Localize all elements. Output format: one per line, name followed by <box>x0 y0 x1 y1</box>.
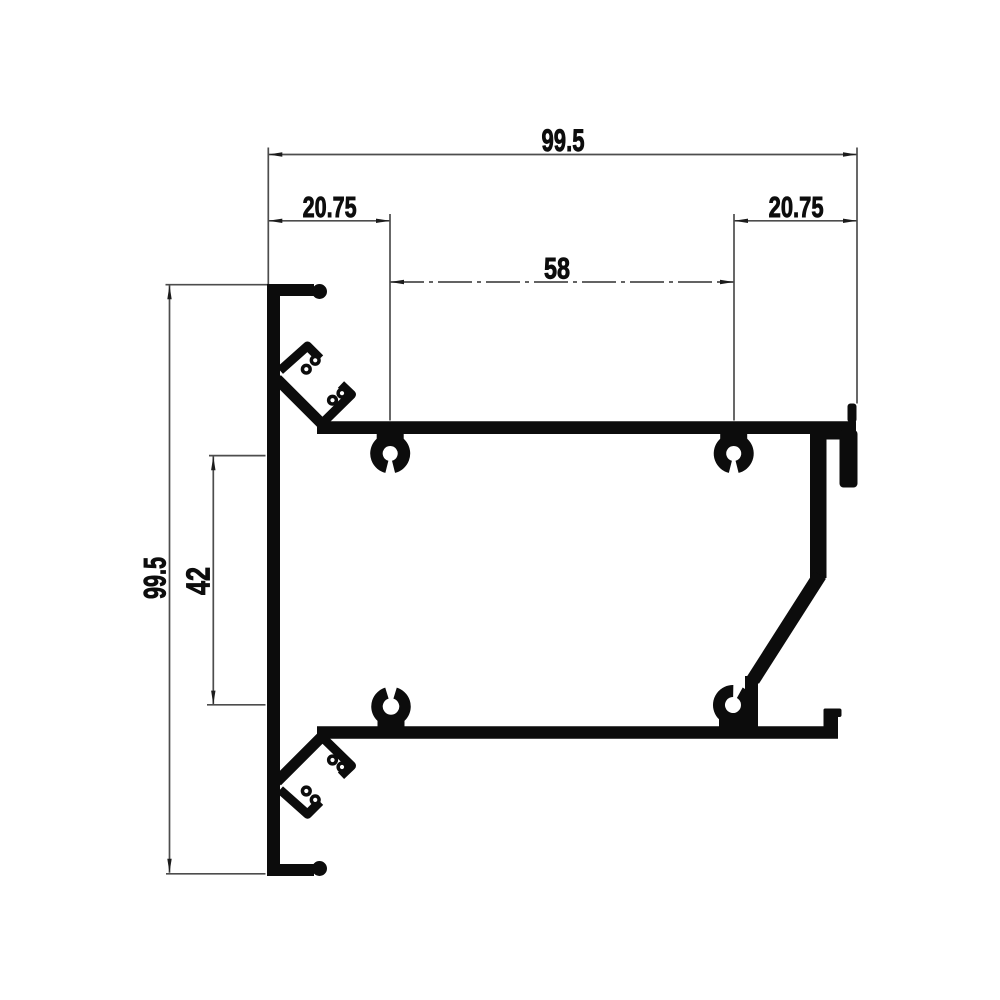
svg-text:20.75: 20.75 <box>303 192 357 224</box>
svg-text:99.5: 99.5 <box>137 557 173 599</box>
svg-text:42: 42 <box>180 567 217 595</box>
svg-text:58: 58 <box>544 253 570 286</box>
svg-text:99.5: 99.5 <box>542 122 585 158</box>
svg-text:20.75: 20.75 <box>769 192 824 224</box>
